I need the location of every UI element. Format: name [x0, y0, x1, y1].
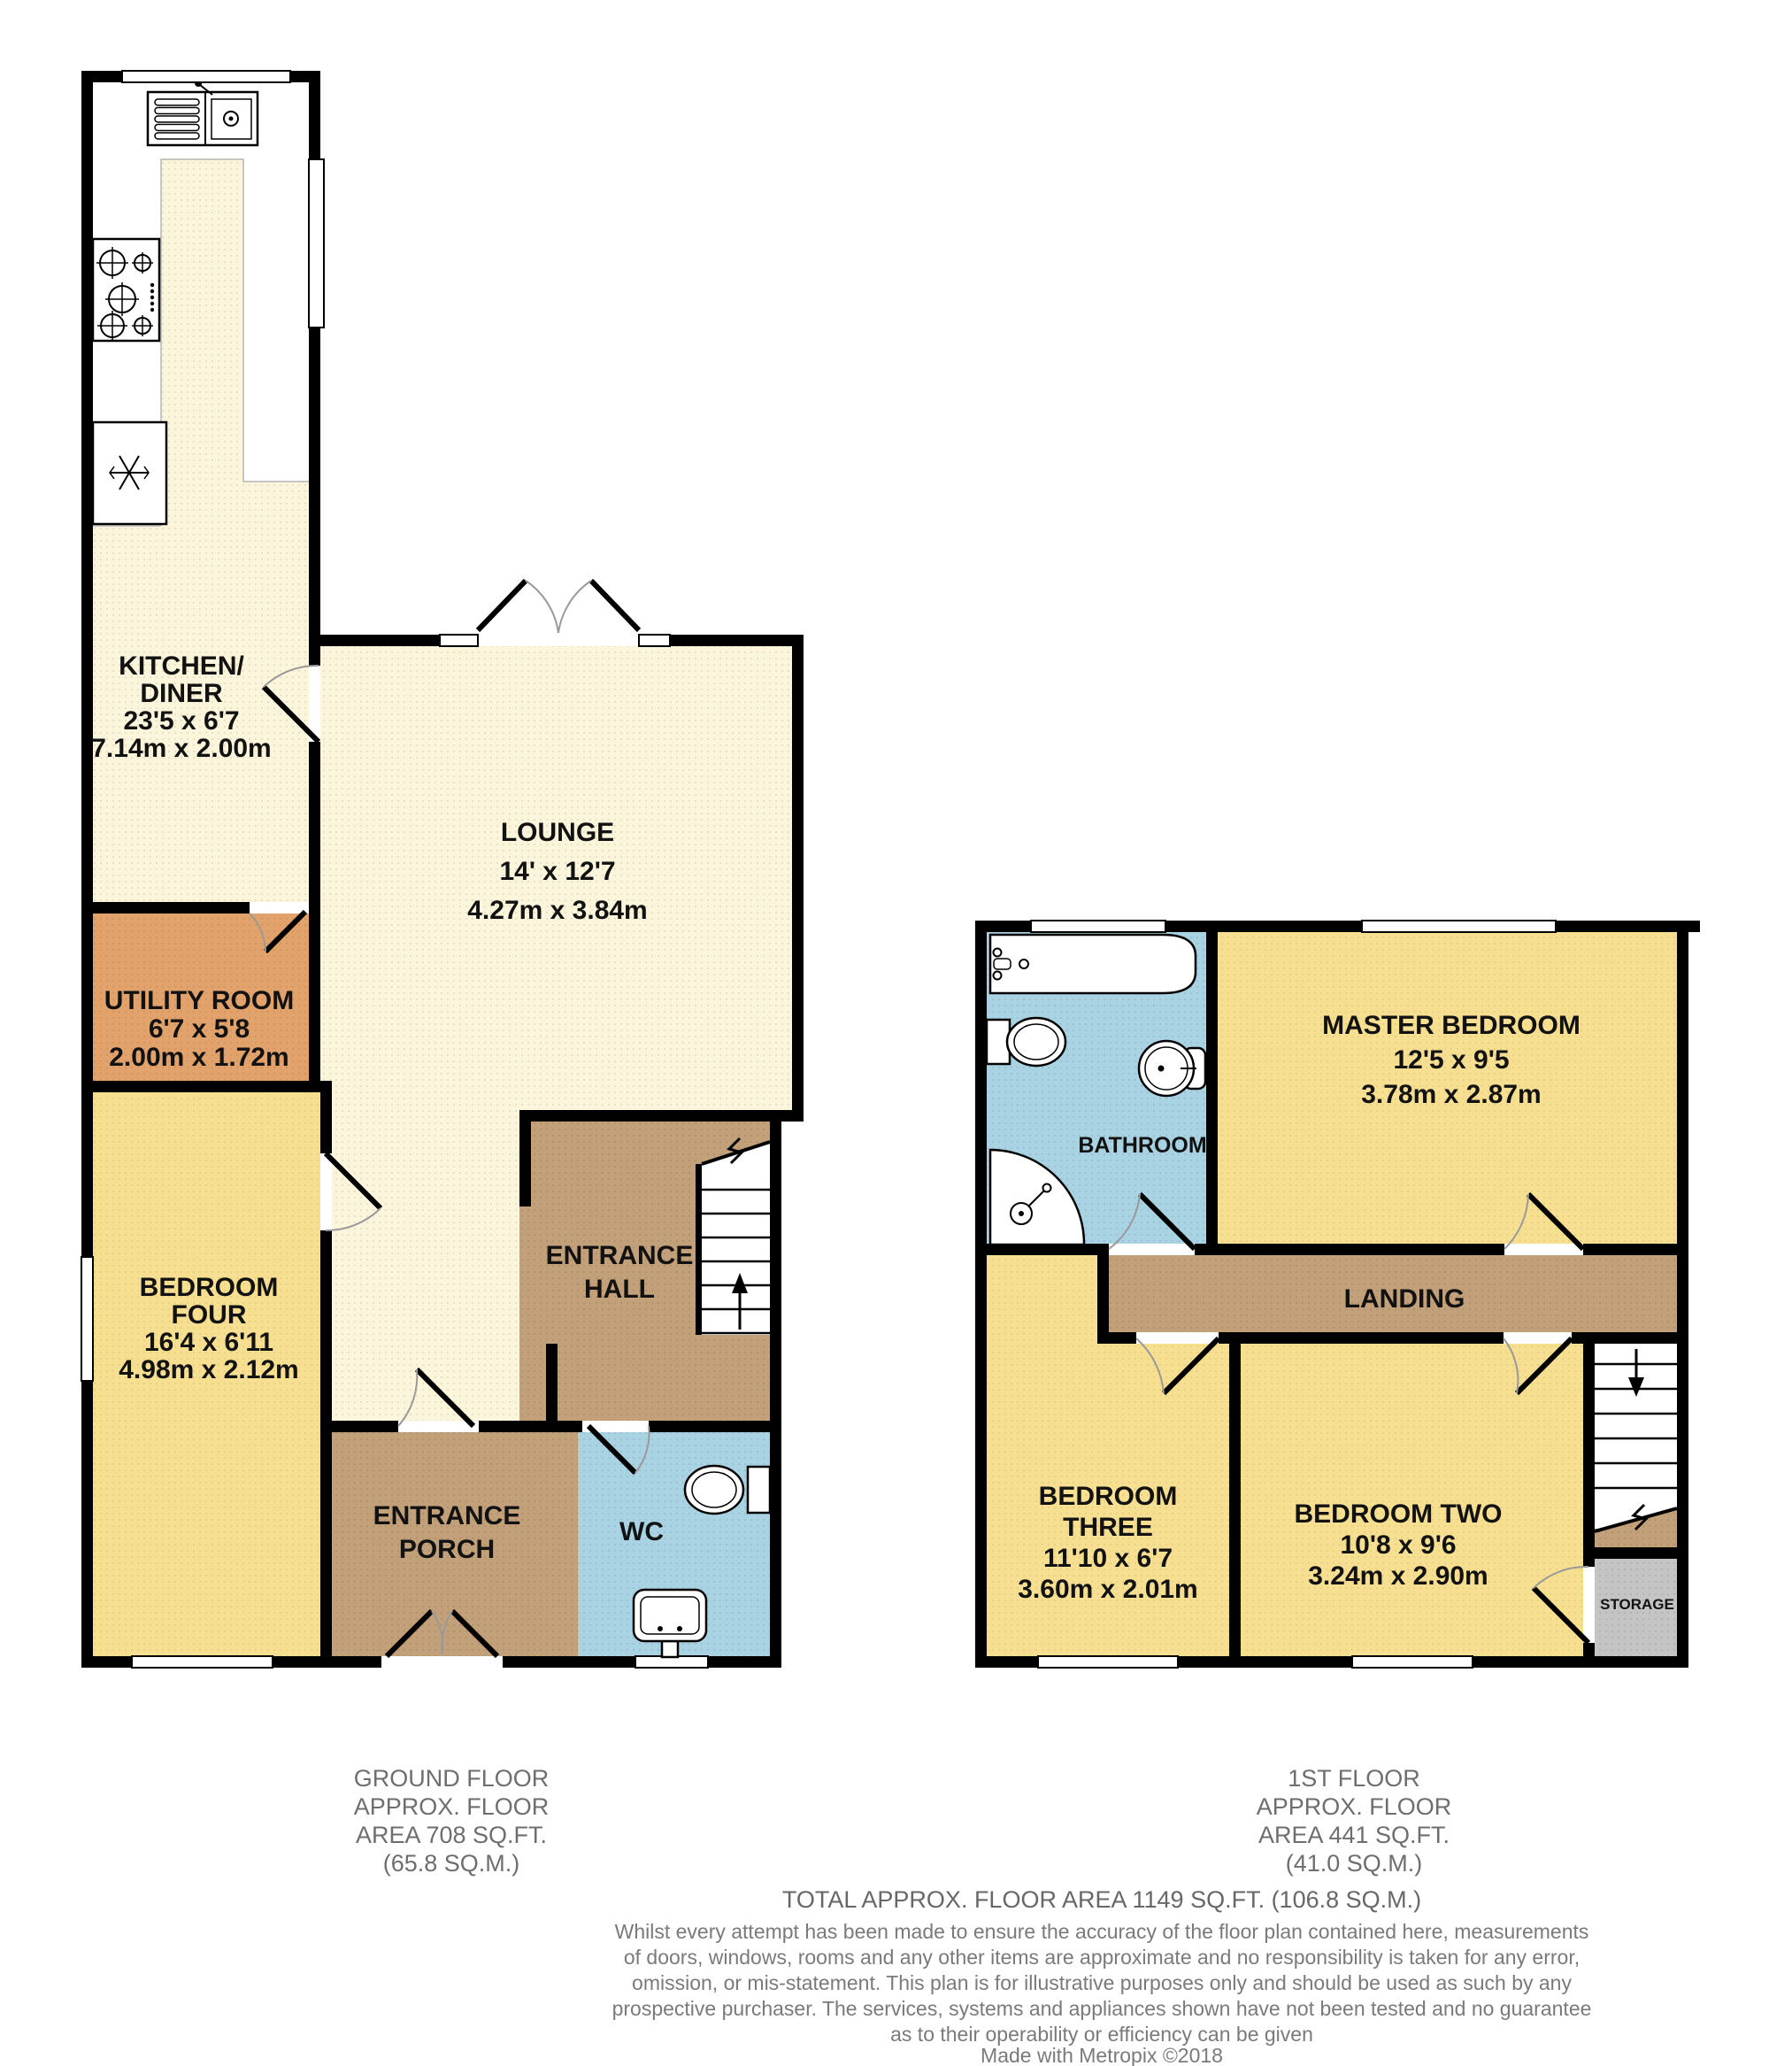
bedroom-three-label: BEDROOM [1039, 1482, 1178, 1511]
utility-dims-ft: 6'7 x 5'8 [149, 1014, 250, 1044]
master-bedroom-label: MASTER BEDROOM [1322, 1011, 1580, 1040]
toilet-icon-first [987, 1018, 1065, 1066]
window-bedroom-three [1038, 1656, 1178, 1668]
disclaimer-line: prospective purchaser. The services, sys… [612, 1997, 1592, 2020]
entrance-hall-label: ENTRANCE [546, 1241, 694, 1270]
floorplan-page: KITCHEN/ DINER 23'5 x 6'7 7.14m x 2.00m … [0, 0, 1792, 2066]
storage-floor [1583, 1559, 1688, 1668]
bath-icon [990, 935, 1196, 993]
master-bedroom-dims-m: 3.78m x 2.87m [1361, 1080, 1541, 1109]
window-bedroom-four-bottom [132, 1656, 273, 1668]
entrance-porch-label: ENTRANCE [373, 1501, 521, 1530]
bedroom-three-dims-ft: 11'10 x 6'7 [1043, 1544, 1173, 1573]
window-master-bedroom [1362, 921, 1556, 932]
wc-label: WC [619, 1517, 664, 1546]
storage-label: STORAGE [1600, 1596, 1674, 1613]
stairs-up-icon [696, 1138, 770, 1335]
kitchen-label: KITCHEN/ [119, 651, 244, 681]
bedroom-two-label: BEDROOM TWO [1295, 1499, 1503, 1529]
kitchen-floor-mid [161, 482, 309, 526]
window-bedroom-four-side [81, 1257, 93, 1381]
window-bedroom-two [1352, 1656, 1473, 1668]
disclaimer-line: Whilst every attempt has been made to en… [615, 1920, 1589, 1943]
first-floor-plan: MASTER BEDROOM 12'5 x 9'5 3.78m x 2.87m … [975, 921, 1700, 1668]
kitchen-label-2: DINER [140, 679, 223, 708]
entrance-hall-label-2: HALL [584, 1275, 655, 1304]
window-kitchen-top [122, 71, 290, 82]
bedroom-four-label-2: FOUR [172, 1300, 247, 1330]
landing-label: LANDING [1344, 1284, 1465, 1314]
disclaimer-line: omission, or mis-statement. This plan is… [632, 1971, 1572, 1994]
lounge-dims-ft: 14' x 12'7 [499, 857, 615, 886]
kitchen-dims-m: 7.14m x 2.00m [91, 734, 271, 763]
first-caption-line: 1ST FLOOR [1288, 1765, 1420, 1792]
bedroom-four-label: BEDROOM [140, 1273, 279, 1302]
bedroom-three-label-2: THREE [1063, 1513, 1153, 1542]
first-caption-line: APPROX. FLOOR [1257, 1793, 1452, 1820]
kitchen-floor-strip [161, 159, 243, 482]
hob-icon [93, 239, 159, 341]
bedroom-four-dims-ft: 16'4 x 6'11 [144, 1328, 273, 1357]
bedroom-two-dims-m: 3.24m x 2.90m [1308, 1561, 1488, 1591]
fridge-icon [93, 422, 166, 524]
first-caption-line: AREA 441 SQ.FT. [1258, 1822, 1450, 1848]
bathroom-label: BATHROOM [1078, 1133, 1206, 1158]
kitchen-dims-ft: 23'5 x 6'7 [123, 706, 239, 736]
utility-label: UTILITY ROOM [104, 986, 294, 1015]
bedroom-four-dims-m: 4.98m x 2.12m [119, 1355, 298, 1384]
first-floor-caption: 1ST FLOOR APPROX. FLOOR AREA 441 SQ.FT. … [1257, 1765, 1452, 1877]
total-area-text: TOTAL APPROX. FLOOR AREA 1149 SQ.FT. (10… [782, 1886, 1421, 1913]
floor-plan-svg: KITCHEN/ DINER 23'5 x 6'7 7.14m x 2.00m … [0, 0, 1792, 2066]
ground-caption-line: APPROX. FLOOR [354, 1793, 550, 1820]
entrance-porch-label-2: PORCH [399, 1535, 495, 1564]
ground-floor-caption: GROUND FLOOR APPROX. FLOOR AREA 708 SQ.F… [354, 1765, 550, 1877]
toilet-icon [685, 1466, 770, 1514]
stairs-down-icon [1595, 1344, 1677, 1547]
lounge-dims-m: 4.27m x 3.84m [467, 896, 647, 925]
metropix-credit: Made with Metropix ©2018 [981, 2044, 1223, 2066]
bedroom-three-dims-m: 3.60m x 2.01m [1018, 1575, 1197, 1604]
window-bathroom [1031, 921, 1165, 932]
first-caption-line: (41.0 SQ.M.) [1286, 1850, 1423, 1877]
window-kitchen-side [309, 159, 324, 328]
lounge-label: LOUNGE [501, 818, 614, 847]
ground-caption-line: GROUND FLOOR [354, 1765, 550, 1792]
french-doors [440, 581, 670, 646]
master-bedroom-dims-ft: 12'5 x 9'5 [1393, 1045, 1509, 1075]
disclaimer-line: of doors, windows, rooms and any other i… [624, 1946, 1580, 1969]
ground-floor-plan: KITCHEN/ DINER 23'5 x 6'7 7.14m x 2.00m … [81, 71, 804, 1668]
bathroom-basin-icon [1139, 1041, 1205, 1096]
footer: TOTAL APPROX. FLOOR AREA 1149 SQ.FT. (10… [612, 1886, 1592, 2066]
disclaimer-line: as to their operability or efficiency ca… [890, 2023, 1313, 2046]
ground-caption-line: AREA 708 SQ.FT. [356, 1822, 547, 1848]
bedroom-two-dims-ft: 10'8 x 9'6 [1340, 1530, 1456, 1560]
utility-dims-m: 2.00m x 1.72m [109, 1043, 288, 1072]
ground-caption-line: (65.8 SQ.M.) [383, 1850, 520, 1877]
